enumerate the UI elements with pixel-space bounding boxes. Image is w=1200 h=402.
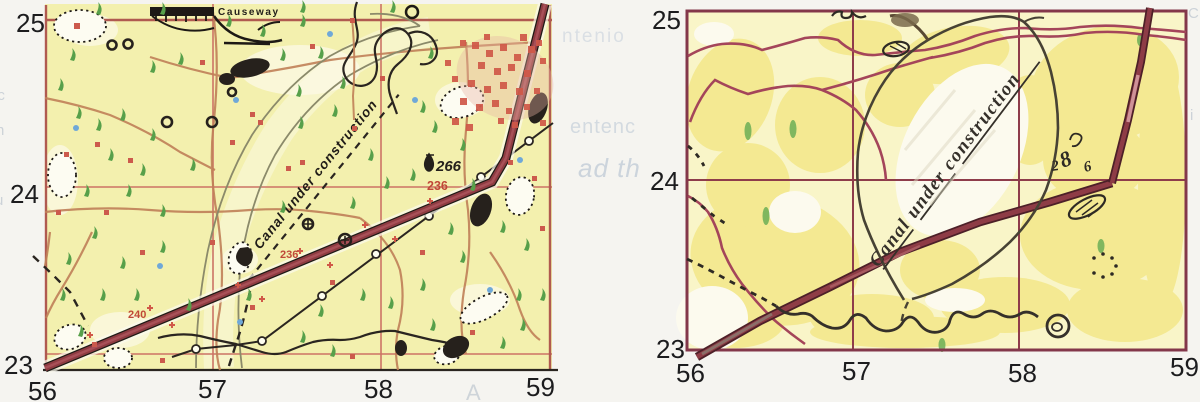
svg-text:25: 25 xyxy=(652,5,681,35)
svg-text:58: 58 xyxy=(364,374,393,402)
svg-text:A: A xyxy=(466,380,481,402)
svg-text:ntenio: ntenio xyxy=(562,26,626,47)
svg-text:266: 266 xyxy=(435,158,462,175)
svg-text:59: 59 xyxy=(526,372,555,402)
svg-text:56: 56 xyxy=(28,376,57,402)
svg-text:24: 24 xyxy=(10,179,39,209)
svg-text:entenc: entenc xyxy=(570,116,636,138)
svg-text:236: 236 xyxy=(427,179,448,193)
svg-text:240: 240 xyxy=(128,309,146,321)
svg-text:n: n xyxy=(0,122,4,139)
svg-text:56: 56 xyxy=(676,358,705,388)
svg-text:Causeway: Causeway xyxy=(218,7,280,18)
svg-text:u: u xyxy=(0,192,3,209)
svg-text:ic: ic xyxy=(0,87,5,104)
svg-text:24: 24 xyxy=(650,166,679,196)
svg-text:25: 25 xyxy=(16,8,45,38)
svg-text:57: 57 xyxy=(842,356,871,386)
svg-text:57: 57 xyxy=(198,374,227,402)
svg-text:59: 59 xyxy=(1170,352,1199,382)
svg-text:58: 58 xyxy=(1008,358,1037,388)
svg-text:i: i xyxy=(1190,107,1193,124)
svg-text:ad th: ad th xyxy=(578,153,641,183)
svg-text:C: C xyxy=(1188,5,1199,22)
svg-text:236: 236 xyxy=(280,249,298,261)
